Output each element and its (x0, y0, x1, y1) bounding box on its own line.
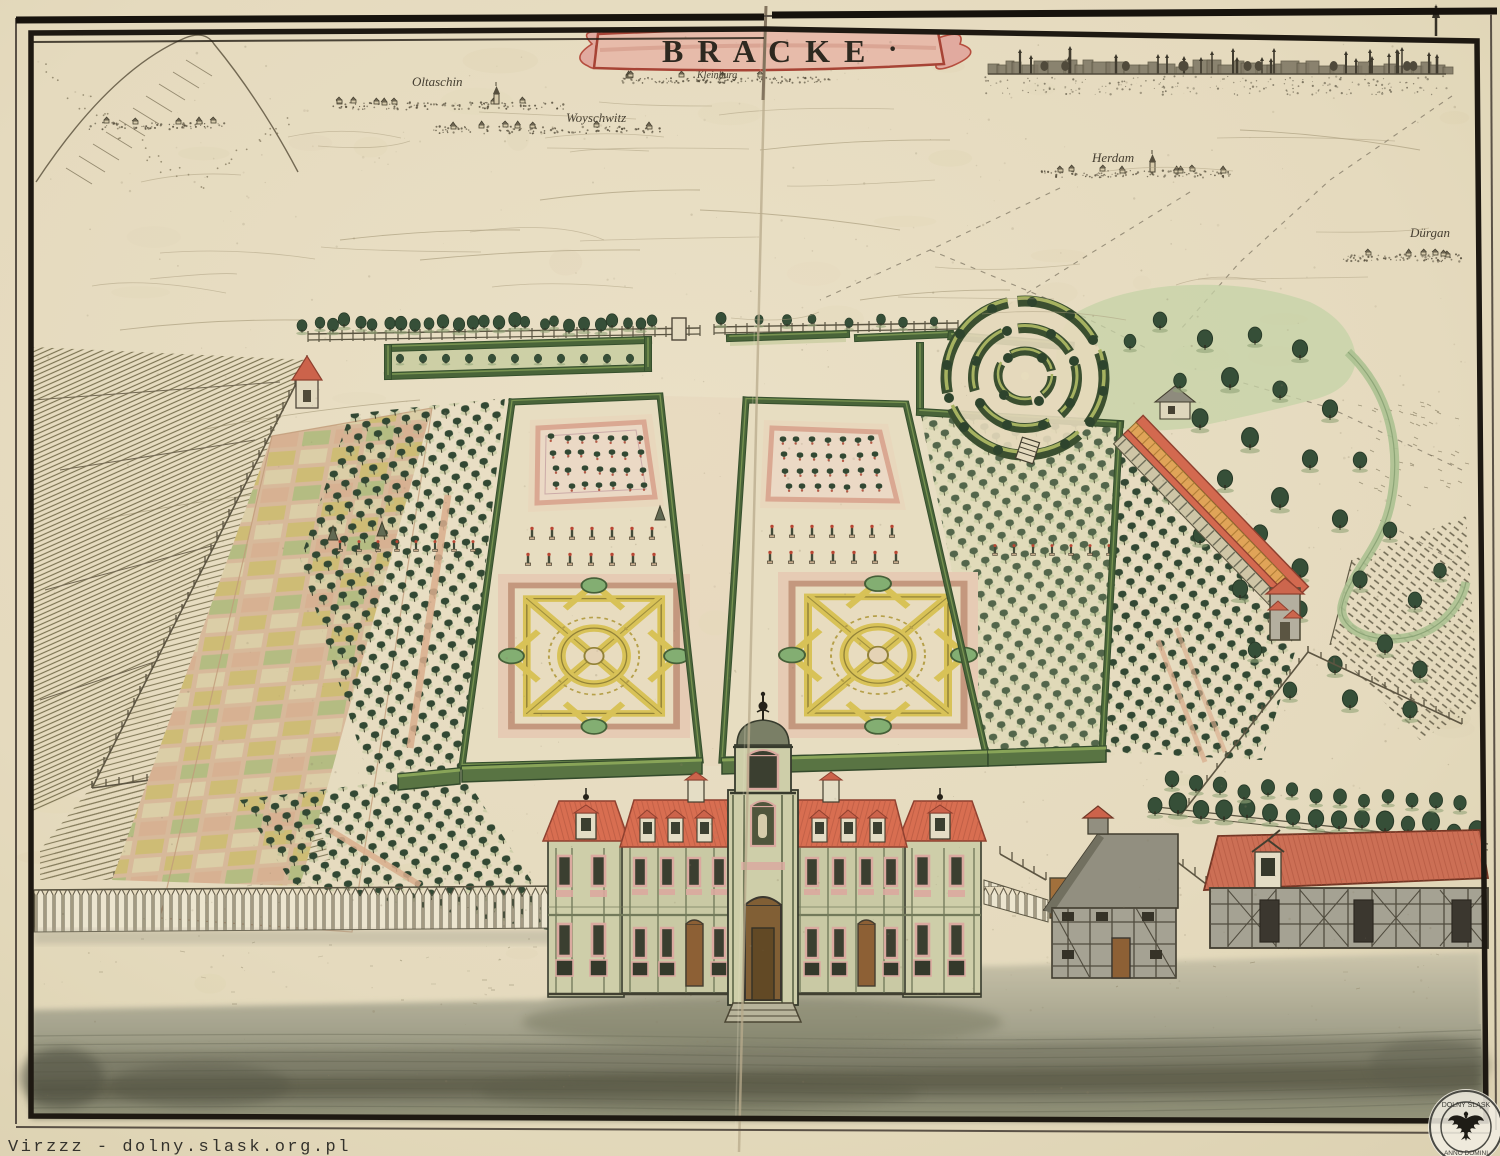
svg-text:Virzzz - dolny.slask.org.pl: Virzzz - dolny.slask.org.pl (8, 1138, 351, 1156)
svg-text:DOLNY ŚLĄSK: DOLNY ŚLĄSK (1442, 1100, 1491, 1109)
svg-text:ANNO DOMINI: ANNO DOMINI (1444, 1150, 1488, 1156)
